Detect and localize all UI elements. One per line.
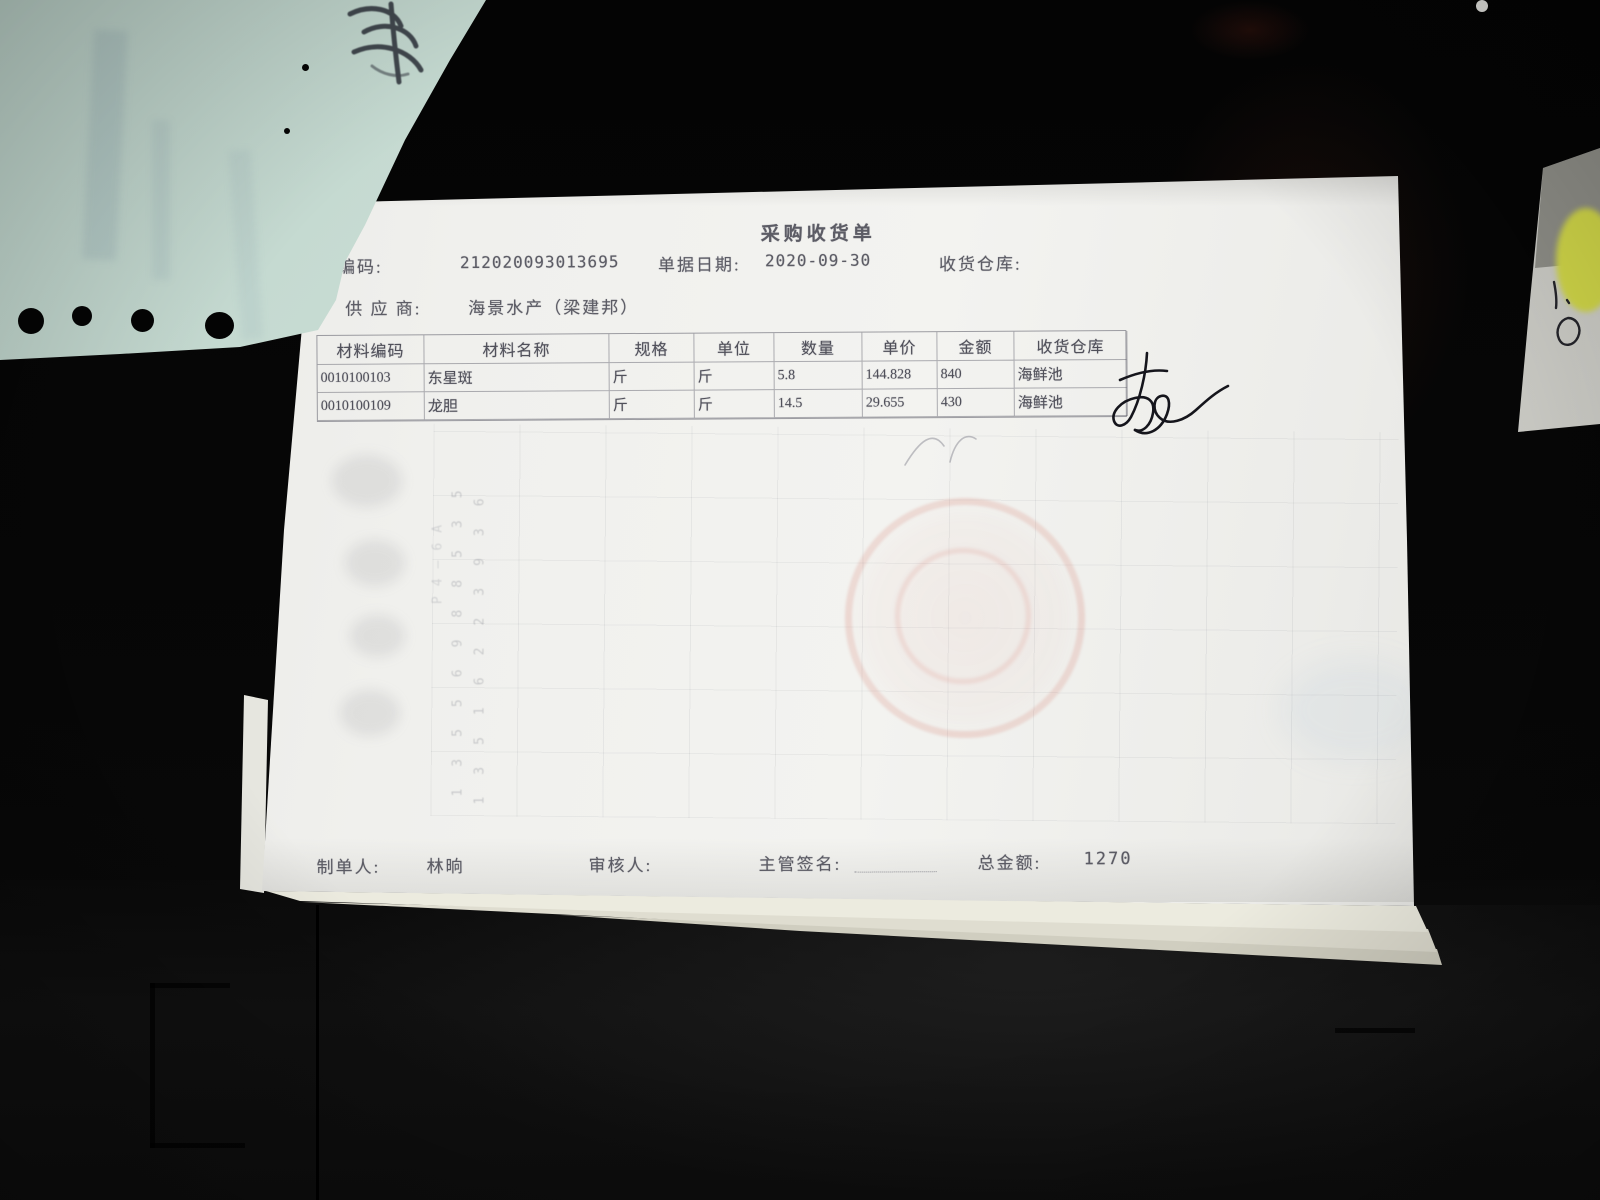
shadow-tint: [1190, 0, 1310, 60]
desk-groove: [150, 1143, 245, 1148]
desk-seam: [316, 905, 319, 1200]
paper-speck: [1476, 0, 1488, 12]
desk-groove: [1335, 1028, 1415, 1033]
photo: 13556988535 13516223936 P4—6A 采购收货单 单据编码…: [0, 0, 1600, 1200]
desk-groove: [150, 983, 230, 988]
desk-groove: [150, 983, 155, 1148]
